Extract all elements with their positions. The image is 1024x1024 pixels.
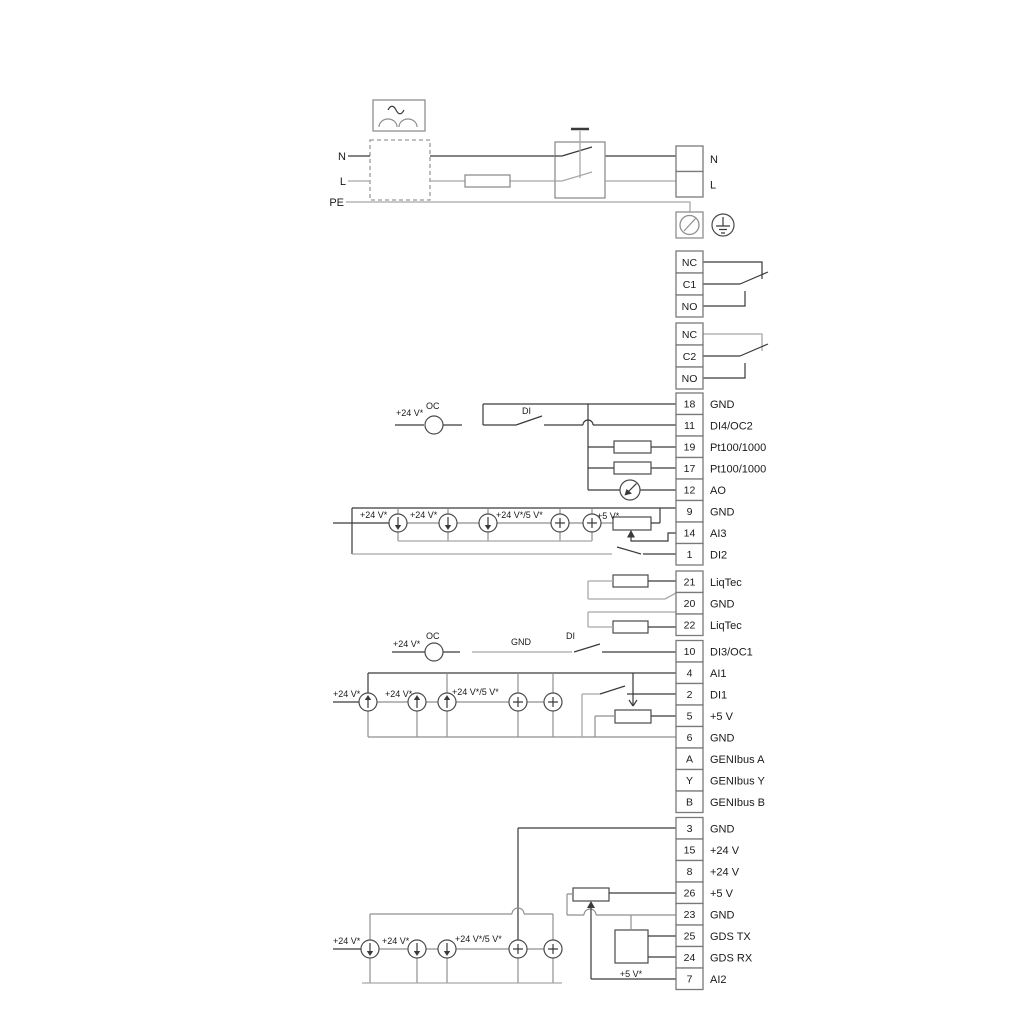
- relay2-wiring: [703, 334, 768, 378]
- terminal-io2-A: AGENIbus A: [676, 748, 765, 770]
- label-5v: +5 V*: [597, 511, 620, 521]
- current-source-icons: [359, 514, 601, 958]
- di1-switch: [600, 686, 676, 694]
- potentiometer-ai1: [615, 710, 651, 723]
- terminal-io3-24: 24GDS RX: [676, 947, 753, 969]
- terminal-number: 11: [684, 420, 695, 432]
- terminal-blocks: NLNCC1NONCC2NO18GND11DI4/OC219Pt100/1000…: [676, 146, 766, 990]
- terminal-number: 1: [687, 549, 693, 561]
- label-di: DI: [566, 631, 575, 641]
- terminal-number: 2: [687, 689, 693, 701]
- pot-wiper-arrow: [587, 901, 595, 908]
- fuse: [465, 175, 510, 187]
- relay1-wiring: [703, 262, 768, 306]
- terminal-relay1-C1: C1: [676, 273, 703, 295]
- terminal-label: GENIbus Y: [710, 775, 765, 787]
- terminal-number: 4: [687, 668, 693, 680]
- pt100-resistor-2: [614, 462, 651, 474]
- terminal-io2-10: 10DI3/OC1: [676, 641, 753, 663]
- source-24v-down-icon: [389, 514, 407, 532]
- terminal-number: Y: [686, 775, 693, 787]
- power-section: N L PE: [329, 100, 734, 238]
- terminal-io3-26: 26+5 V: [676, 882, 734, 904]
- terminal-number: 8: [687, 866, 693, 878]
- terminal-label: L: [710, 179, 716, 191]
- source-24v-up-icon: [359, 693, 377, 711]
- label-oc: OC: [426, 631, 440, 641]
- terminal-io1-17: 17Pt100/1000: [676, 458, 766, 480]
- terminal-relay2-C2: C2: [676, 345, 703, 367]
- terminal-label: +5 V: [710, 888, 734, 900]
- terminal-relay1-NO: NO: [676, 295, 703, 317]
- terminal-relay2-NO: NO: [676, 367, 703, 389]
- label-24v: +24 V*: [360, 510, 388, 520]
- terminal-number: 25: [684, 931, 696, 943]
- terminal-number: 15: [684, 845, 696, 857]
- terminal-label: +24 V: [710, 866, 740, 878]
- terminal-io3-23: 23GND: [676, 904, 735, 926]
- pe-wire: [346, 202, 690, 212]
- terminal-number: 5: [687, 711, 693, 723]
- terminal-io2-Y: YGENIbus Y: [676, 770, 765, 792]
- terminal-number: B: [686, 797, 693, 809]
- pot-wiper-arrow: [627, 530, 635, 538]
- source-24v-down-icon: [438, 940, 456, 958]
- terminal-label: N: [710, 154, 718, 166]
- io3-wiring: [333, 828, 676, 983]
- terminal-io3-3: 3GND: [676, 818, 735, 840]
- terminal-label: GENIbus A: [710, 754, 765, 766]
- terminal-label: +24 V: [710, 845, 740, 857]
- terminal-label: GDS RX: [710, 952, 753, 964]
- label-24v: +24 V*: [396, 408, 424, 418]
- terminal-io3-7: 7AI2: [676, 968, 727, 990]
- label-24v-5v: +24 V*/5 V*: [455, 934, 502, 944]
- mains-l-label: L: [340, 176, 346, 188]
- terminal-number: 20: [684, 598, 696, 610]
- label-24v: +24 V*: [385, 689, 413, 699]
- terminal-io2-2: 2DI1: [676, 684, 727, 706]
- label-24v: +24 V*: [410, 510, 438, 520]
- terminal-number: 18: [684, 399, 696, 411]
- terminal-number: 9: [687, 506, 693, 518]
- terminal-label: Pt100/1000: [710, 463, 766, 475]
- label-24v-5v: +24 V*/5 V*: [452, 687, 499, 697]
- terminal-label: GND: [710, 598, 735, 610]
- terminal-label: DI1: [710, 689, 727, 701]
- terminal-number: 23: [684, 909, 696, 921]
- source-24v-down-icon: [479, 514, 497, 532]
- source-plus-icon: [551, 514, 569, 532]
- label-24v: +24 V*: [382, 936, 410, 946]
- terminal-number: NO: [682, 373, 698, 385]
- terminal-io2-4: 4AI1: [676, 662, 727, 684]
- terminal-label: AI3: [710, 528, 727, 540]
- terminal-label: DI4/OC2: [710, 420, 753, 432]
- terminal-label: GND: [710, 909, 735, 921]
- terminal-io1-11: 11DI4/OC2: [676, 415, 753, 437]
- source-24v-down-icon: [408, 940, 426, 958]
- terminal-label: LiqTec: [710, 577, 742, 589]
- terminal-io1-18: 18GND: [676, 393, 735, 415]
- label-24v: +24 V*: [333, 936, 361, 946]
- terminal-liqtec-22: 22LiqTec: [676, 614, 742, 636]
- gds-sensor-box: [615, 930, 648, 963]
- terminal-power_out-N: N: [676, 146, 718, 172]
- terminal-liqtec-21: 21LiqTec: [676, 571, 742, 593]
- terminal-label: LiqTec: [710, 620, 742, 632]
- source-24v-down-icon: [361, 940, 379, 958]
- terminal-io3-25: 25GDS TX: [676, 925, 751, 947]
- label-oc: OC: [426, 401, 440, 411]
- terminal-io1-19: 19Pt100/1000: [676, 436, 766, 458]
- terminal-number: C2: [683, 351, 697, 363]
- di3-switch: [574, 644, 676, 652]
- terminal-box: [676, 146, 703, 172]
- open-collector-icon: [425, 643, 443, 661]
- terminal-label: GENIbus B: [710, 797, 765, 809]
- terminal-number: 7: [687, 974, 693, 986]
- terminal-label: DI2: [710, 549, 727, 561]
- source-plus-icon: [544, 940, 562, 958]
- terminal-io1-14: 14AI3: [676, 522, 727, 544]
- terminal-number: NO: [682, 301, 698, 313]
- terminal-io3-15: 15+24 V: [676, 839, 740, 861]
- di2-switch: [617, 547, 676, 554]
- terminal-number: NC: [682, 329, 698, 341]
- terminal-label: Pt100/1000: [710, 442, 766, 454]
- terminal-number: 22: [684, 620, 696, 632]
- terminal-relay2-NC: NC: [676, 323, 703, 345]
- terminal-label: AO: [710, 485, 726, 497]
- terminal-io1-1: 1DI2: [676, 544, 727, 566]
- terminal-label: AI1: [710, 668, 727, 680]
- label-5v: +5 V*: [620, 969, 643, 979]
- terminal-relay1-NC: NC: [676, 251, 703, 273]
- terminal-liqtec-20: 20GND: [676, 593, 735, 615]
- terminal-label: GND: [710, 399, 735, 411]
- label-24v: +24 V*: [333, 689, 361, 699]
- io1-wiring: [333, 404, 676, 554]
- label-24v-5v: +24 V*/5 V*: [496, 510, 543, 520]
- open-collector-icon: [425, 416, 443, 434]
- terminal-io1-9: 9GND: [676, 501, 735, 523]
- wiring-diagram: N L PE: [0, 0, 1024, 1024]
- source-plus-icon: [544, 693, 562, 711]
- terminal-number: C1: [683, 279, 697, 291]
- earth-ground-glyph: [716, 217, 730, 233]
- liqtec-wiring: [588, 575, 676, 633]
- terminal-number: 21: [684, 577, 696, 589]
- terminal-number: 12: [684, 485, 696, 497]
- label-24v: +24 V*: [393, 639, 421, 649]
- liqtec-sensor-2: [613, 621, 648, 633]
- source-24v-down-icon: [439, 514, 457, 532]
- diagram-canvas: N L PE: [0, 0, 1024, 1024]
- terminal-number: 19: [684, 442, 696, 454]
- terminal-box: [676, 172, 703, 198]
- potentiometer-ai2: [573, 888, 609, 901]
- terminal-label: AI2: [710, 974, 727, 986]
- label-gnd: GND: [511, 637, 532, 647]
- terminal-number: 3: [687, 823, 693, 835]
- terminal-io2-5: 5+5 V: [676, 705, 734, 727]
- terminal-number: NC: [682, 257, 698, 269]
- terminal-io2-B: BGENIbus B: [676, 791, 765, 813]
- terminal-label: GND: [710, 732, 735, 744]
- terminal-label: GND: [710, 506, 735, 518]
- pot-feed-arrow: [629, 673, 637, 706]
- source-plus-icon: [509, 940, 527, 958]
- terminal-number: 26: [684, 888, 696, 900]
- terminal-io1-12: 12AO: [676, 479, 726, 501]
- terminal-io2-6: 6GND: [676, 727, 735, 749]
- terminal-label: GDS TX: [710, 931, 751, 943]
- external-supply-dashed-box: [370, 140, 430, 200]
- terminal-io3-8: 8+24 V: [676, 861, 740, 883]
- terminal-power_out-L: L: [676, 172, 716, 198]
- terminal-label: GND: [710, 823, 735, 835]
- terminal-number: 24: [684, 952, 696, 964]
- terminal-label: +5 V: [710, 711, 734, 723]
- terminal-number: 6: [687, 732, 693, 744]
- terminal-number: 10: [684, 646, 696, 658]
- terminal-number: 17: [684, 463, 696, 475]
- label-di: DI: [522, 406, 531, 416]
- mains-n-label: N: [338, 151, 346, 163]
- terminal-number: 14: [684, 528, 696, 540]
- terminal-number: A: [686, 754, 693, 766]
- mains-pe-label: PE: [329, 197, 344, 209]
- di4-switch: [483, 416, 676, 425]
- pt100-resistor-1: [614, 441, 651, 453]
- liqtec-sensor-1: [613, 575, 648, 587]
- terminal-label: DI3/OC1: [710, 646, 753, 658]
- source-plus-icon: [509, 693, 527, 711]
